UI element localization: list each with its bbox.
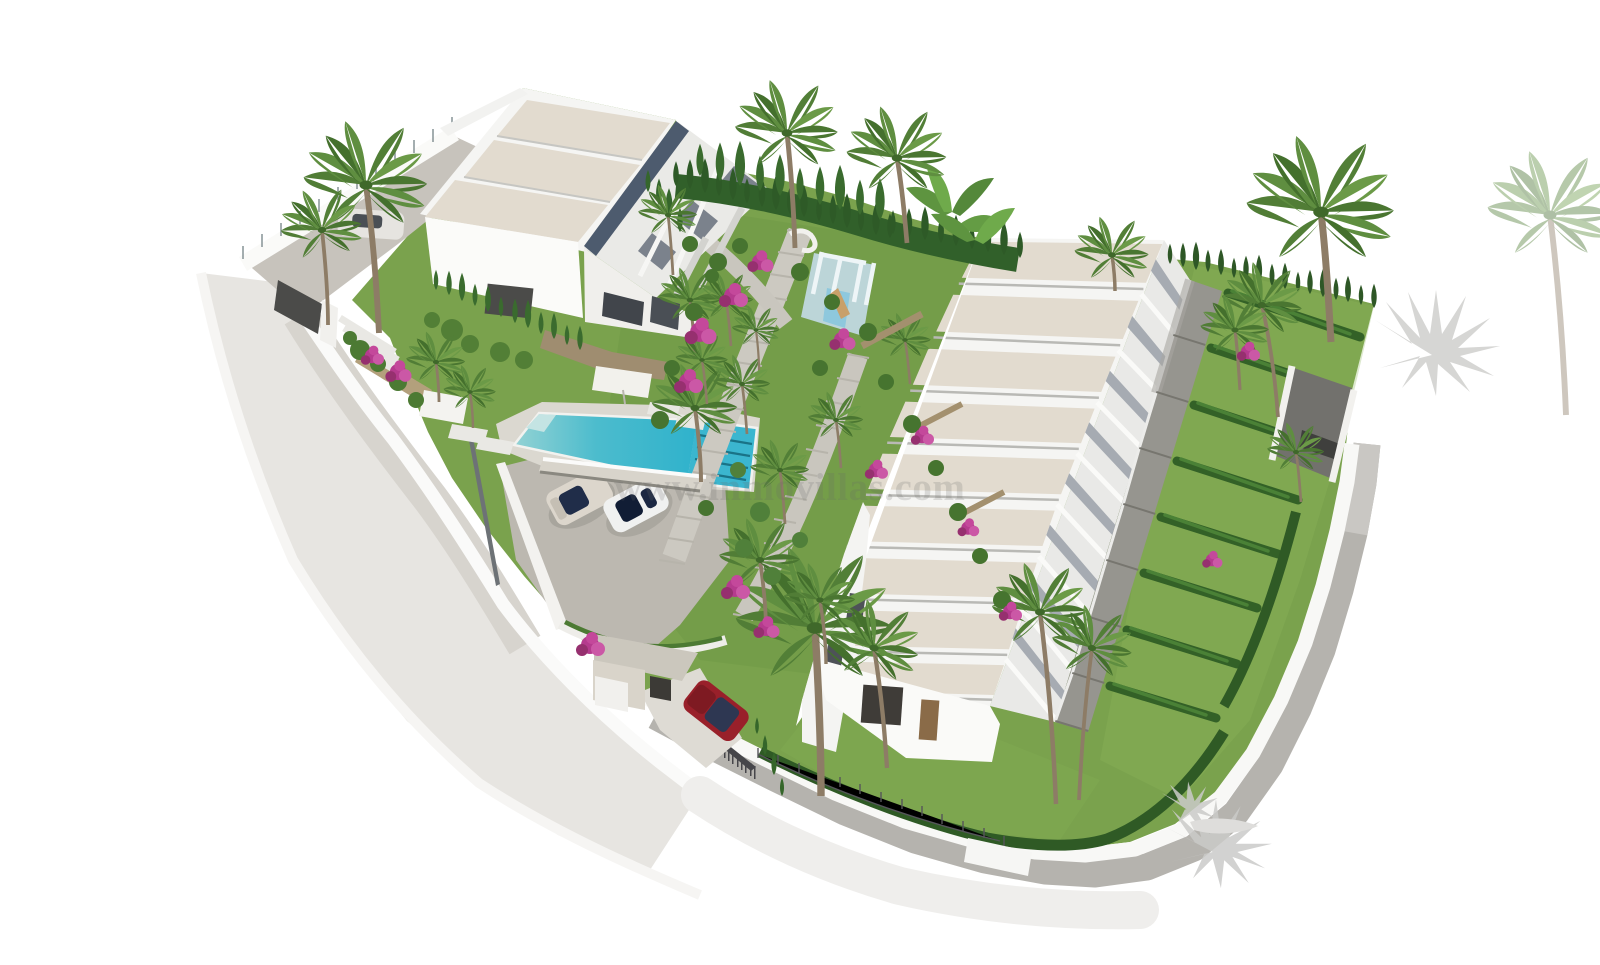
- svg-text:www.inmovillas.com: www.inmovillas.com: [614, 466, 965, 509]
